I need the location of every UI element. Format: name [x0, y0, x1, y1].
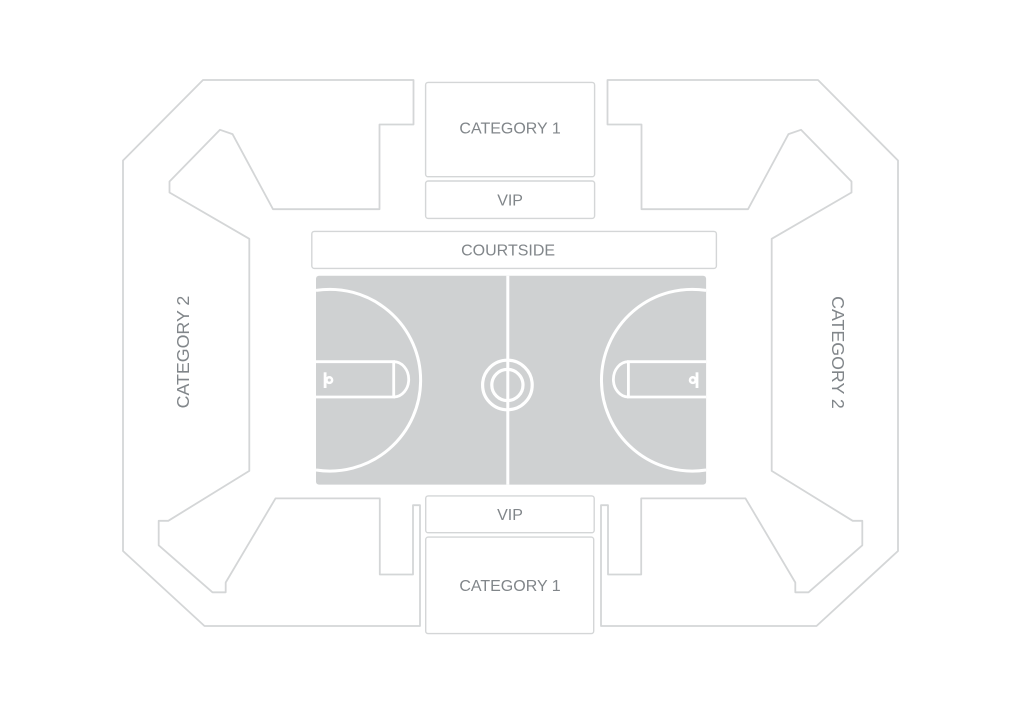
svg-text:CATEGORY 1: CATEGORY 1 — [459, 578, 560, 595]
svg-text:CATEGORY 2: CATEGORY 2 — [828, 296, 848, 409]
svg-text:COURTSIDE: COURTSIDE — [461, 243, 555, 260]
svg-text:CATEGORY 2: CATEGORY 2 — [173, 296, 193, 409]
svg-text:VIP: VIP — [497, 193, 523, 210]
svg-text:VIP: VIP — [497, 507, 523, 524]
svg-text:CATEGORY 1: CATEGORY 1 — [459, 121, 560, 138]
